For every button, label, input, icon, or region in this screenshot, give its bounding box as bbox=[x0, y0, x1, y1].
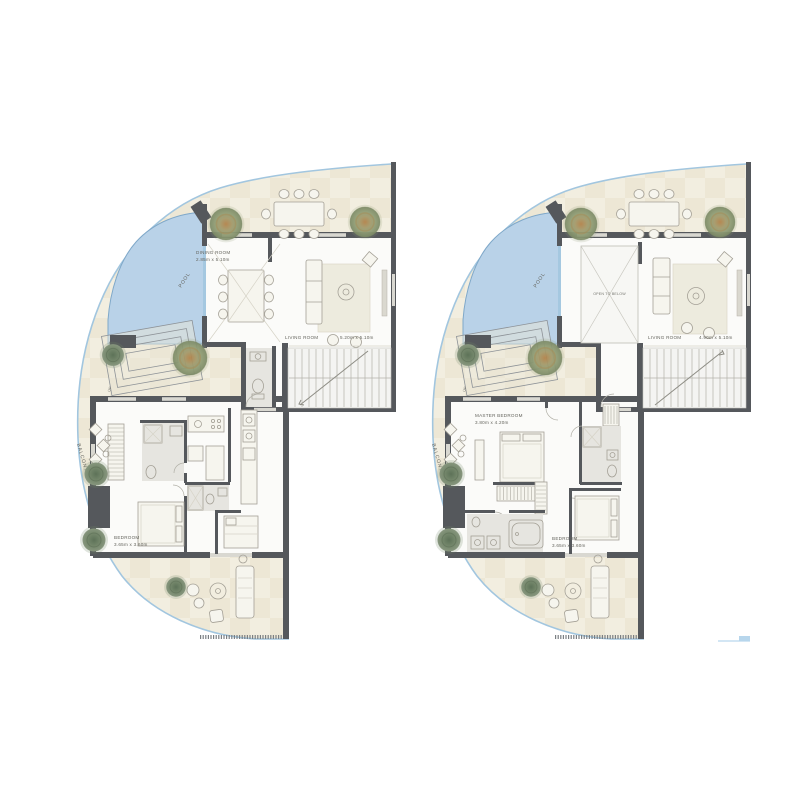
dining-room-label: DINING ROOM bbox=[196, 250, 230, 255]
tree bbox=[348, 205, 383, 240]
tv-console bbox=[382, 270, 387, 316]
chair bbox=[682, 323, 693, 334]
tree bbox=[563, 206, 600, 243]
plant bbox=[82, 460, 110, 488]
sofa bbox=[653, 258, 670, 314]
bathroom bbox=[140, 420, 187, 483]
kitchen-island bbox=[206, 446, 224, 480]
bedroom-dims: 3.65m x 3.60m bbox=[114, 542, 148, 547]
tree bbox=[525, 338, 564, 377]
living-room-label: LIVING ROOM bbox=[648, 335, 681, 340]
plant bbox=[164, 575, 188, 599]
corner-mark-block bbox=[739, 636, 750, 641]
floor-plan-lower-level: POOL UP bbox=[50, 158, 400, 650]
pillow bbox=[226, 518, 236, 525]
inner-bathroom bbox=[185, 482, 230, 511]
fridge bbox=[188, 446, 203, 461]
pillow bbox=[176, 506, 182, 522]
floorplan-canvas: POOL UP bbox=[0, 0, 800, 800]
chair bbox=[328, 335, 339, 346]
bedroom-label: BEDROOM bbox=[552, 536, 578, 541]
plant bbox=[455, 342, 482, 369]
rug bbox=[318, 264, 370, 332]
sun-lounger bbox=[236, 566, 254, 618]
chair bbox=[564, 609, 579, 623]
tree bbox=[208, 206, 245, 243]
pillow bbox=[523, 434, 541, 441]
living-room-dims: 5.20m x 5.10m bbox=[340, 335, 374, 340]
master-bedroom-dims: 3.80m x 4.20m bbox=[475, 420, 509, 425]
bedroom-label: BEDROOM bbox=[114, 535, 140, 540]
sofa bbox=[306, 260, 322, 324]
master-bathroom bbox=[465, 510, 545, 552]
tv-console bbox=[737, 270, 742, 316]
chair bbox=[187, 584, 199, 596]
staircase bbox=[288, 348, 391, 408]
dining-room-dims: 2.85m x 5.10m bbox=[196, 257, 230, 262]
pillow bbox=[176, 526, 182, 542]
sun-lounger bbox=[591, 566, 609, 618]
chair bbox=[549, 598, 559, 608]
living-room-dims: 4.90m x 5.10m bbox=[699, 335, 733, 340]
living-room-label: LIVING ROOM bbox=[285, 335, 318, 340]
plant bbox=[100, 342, 127, 369]
powder-room bbox=[246, 348, 272, 407]
open-to-below: OPEN TO BELOW bbox=[581, 246, 638, 343]
bedroom-dims: 3.65m x 3.60m bbox=[552, 543, 586, 548]
chair bbox=[209, 609, 224, 623]
chair bbox=[194, 598, 204, 608]
corner-mark bbox=[716, 636, 762, 644]
closet bbox=[603, 404, 619, 426]
plant bbox=[519, 575, 543, 599]
master-bedroom-label: MASTER BEDROOM bbox=[475, 413, 523, 418]
plant bbox=[437, 460, 465, 488]
outdoor-dining-table bbox=[274, 202, 324, 226]
open-to-below-label: OPEN TO BELOW bbox=[593, 292, 626, 296]
wardrobe bbox=[108, 424, 124, 480]
plant bbox=[435, 526, 463, 554]
pillow bbox=[611, 499, 617, 516]
kitchen-counter bbox=[188, 416, 224, 432]
tree bbox=[170, 338, 209, 377]
tree bbox=[703, 205, 738, 240]
floor-plan-upper-level: POOL UP bbox=[405, 158, 755, 650]
rug bbox=[673, 264, 727, 334]
pillow bbox=[502, 434, 520, 441]
dresser bbox=[475, 440, 484, 480]
plant bbox=[80, 526, 108, 554]
outdoor-dining-table bbox=[629, 202, 679, 226]
pillow bbox=[611, 520, 617, 537]
chair bbox=[542, 584, 554, 596]
